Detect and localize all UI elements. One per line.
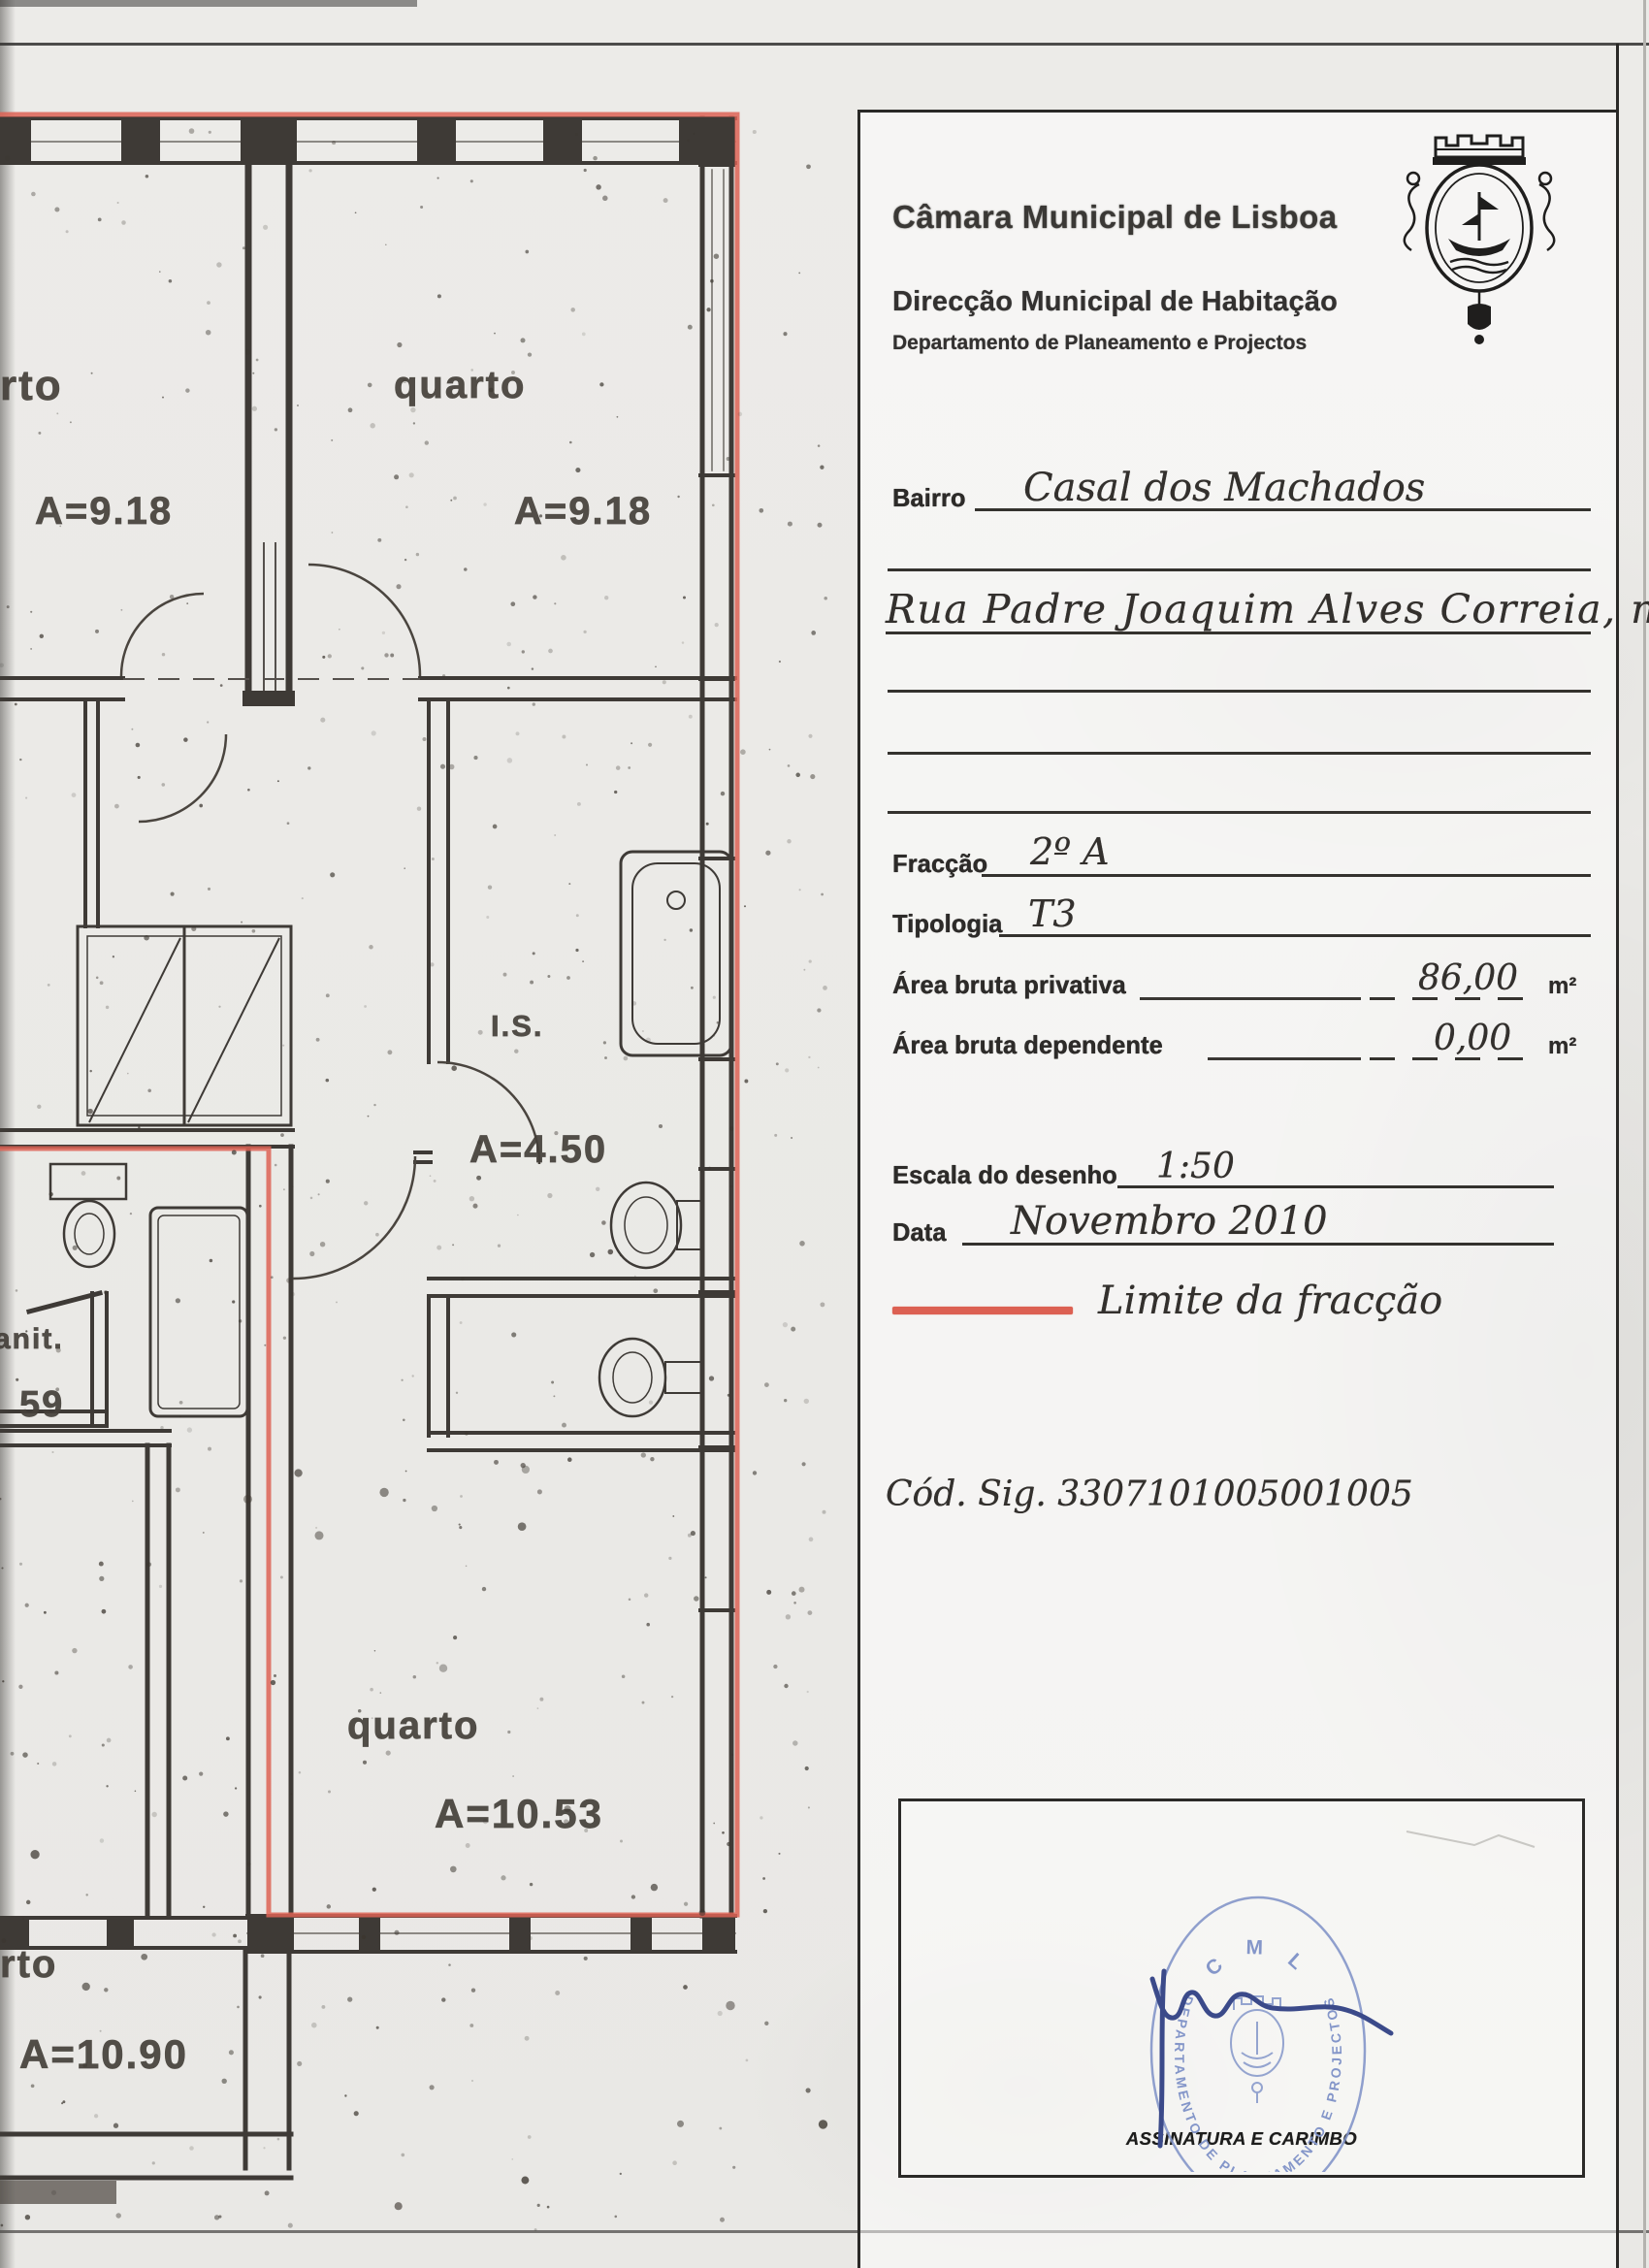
scan-right-edge — [1643, 0, 1646, 2268]
cml-round-stamp-icon: C M L DEPARTAMENTO DE PLANEAMENTO E PROJ… — [1151, 1897, 1365, 2172]
escala-value: 1:50 — [1156, 1147, 1235, 1186]
abp-label: Área bruta privativa — [892, 970, 1126, 1000]
tipologia-value: T3 — [1028, 892, 1077, 935]
plan-door-arcs — [121, 565, 539, 1279]
form-panel-left-border — [857, 110, 860, 2268]
room-label: quarto — [347, 1704, 479, 1747]
fraccao-value: 2º A — [1030, 830, 1110, 873]
blank-rule-4 — [888, 811, 1591, 814]
escala-rule — [1117, 1185, 1554, 1188]
room-area-label: A=10.53 — [435, 1791, 603, 1836]
crest-shield — [1427, 165, 1532, 291]
tipologia-label: Tipologia — [892, 909, 1002, 939]
tipologia-rule — [999, 934, 1591, 937]
room-label: rto — [0, 362, 63, 409]
room-label: rto — [0, 1943, 57, 1986]
paper-wrinkle — [1406, 1831, 1535, 1847]
bathtub-fixture — [621, 852, 731, 1055]
room-label: I.S. — [491, 1009, 544, 1043]
abd-label: Área bruta dependente — [892, 1030, 1163, 1060]
plan-room-labels: rto A=9.18 quarto A=9.18 I.S. A=4.50 qua… — [0, 362, 652, 2077]
toilet-fixture — [611, 1183, 702, 1268]
org-department: Departamento de Planeamento e Projectos — [892, 332, 1307, 355]
lisbon-coat-of-arms-icon — [1382, 116, 1576, 349]
room-area-label: A=9.18 — [514, 490, 652, 533]
escala-label: Escala do desenho — [892, 1160, 1117, 1190]
fraccao-rule — [982, 874, 1591, 877]
bairro-value: Casal dos Machados — [1023, 466, 1425, 510]
abp-value: 86,00 — [1418, 958, 1518, 998]
plan-wardrobe — [78, 926, 291, 1125]
bairro-label: Bairro — [892, 483, 965, 513]
abd-unit: m² — [1548, 1033, 1576, 1060]
room-area-label: A=9.18 — [35, 490, 173, 533]
org-division: Direcção Municipal de Habitação — [892, 286, 1338, 318]
stamp-top-text: C M L — [1202, 1936, 1315, 1981]
room-label: quarto — [394, 364, 526, 406]
form-panel-top-border — [857, 110, 1618, 113]
fraccao-label: Fracção — [892, 849, 987, 879]
floor-plan-drawing: rto A=9.18 quarto A=9.18 I.S. A=4.50 qua… — [0, 0, 834, 2268]
cod-sig-label: Cód. Sig. — [886, 1474, 1047, 1514]
fraction-limit-legend-line — [892, 1307, 1073, 1314]
form-panel-right-border — [1616, 44, 1619, 2268]
address-rule — [886, 632, 1591, 634]
data-rule — [962, 1243, 1554, 1246]
data-value: Novembro 2010 — [1011, 1199, 1328, 1244]
crest-pendant — [1468, 291, 1491, 344]
crest-mural-crown — [1433, 136, 1526, 165]
stamp-and-signature: C M L DEPARTAMENTO DE PLANEAMENTO E PROJ… — [898, 1798, 1579, 2172]
washbasin-fixture — [50, 1164, 126, 1267]
address-value: Rua Padre Joaquim Alves Correia, nº 6 — [886, 586, 1649, 632]
blank-rule-3 — [888, 752, 1591, 755]
fraction-limit-legend-label: Limite da fracção — [1098, 1279, 1442, 1323]
room-area-label: A=10.90 — [19, 2031, 188, 2077]
bidet-fixture — [599, 1339, 702, 1416]
cod-sig-value: 3307101005001005 — [1057, 1474, 1412, 1514]
room-area-label: A=4.50 — [469, 1128, 607, 1171]
plan-walls — [0, 118, 735, 2204]
room-label: anit. — [0, 1323, 64, 1355]
scanned-floor-plan-page: rto A=9.18 quarto A=9.18 I.S. A=4.50 qua… — [0, 0, 1649, 2268]
bairro-rule — [975, 508, 1591, 511]
org-title: Câmara Municipal de Lisboa — [892, 199, 1338, 236]
laundry-tank-fixture — [150, 1208, 247, 1416]
data-label: Data — [892, 1217, 946, 1247]
abp-unit: m² — [1548, 973, 1576, 1000]
abp-rule — [1140, 997, 1361, 1000]
blank-rule-2 — [888, 690, 1591, 693]
cod-sig: Cód. Sig. 3307101005001005 — [886, 1474, 1413, 1514]
stamp-mini-crest — [1231, 1996, 1283, 2103]
svg-text:C M L: C M L — [1202, 1936, 1315, 1981]
blank-rule-1 — [888, 568, 1591, 571]
abd-value: 0,00 — [1434, 1019, 1511, 1058]
abd-rule — [1208, 1057, 1361, 1060]
